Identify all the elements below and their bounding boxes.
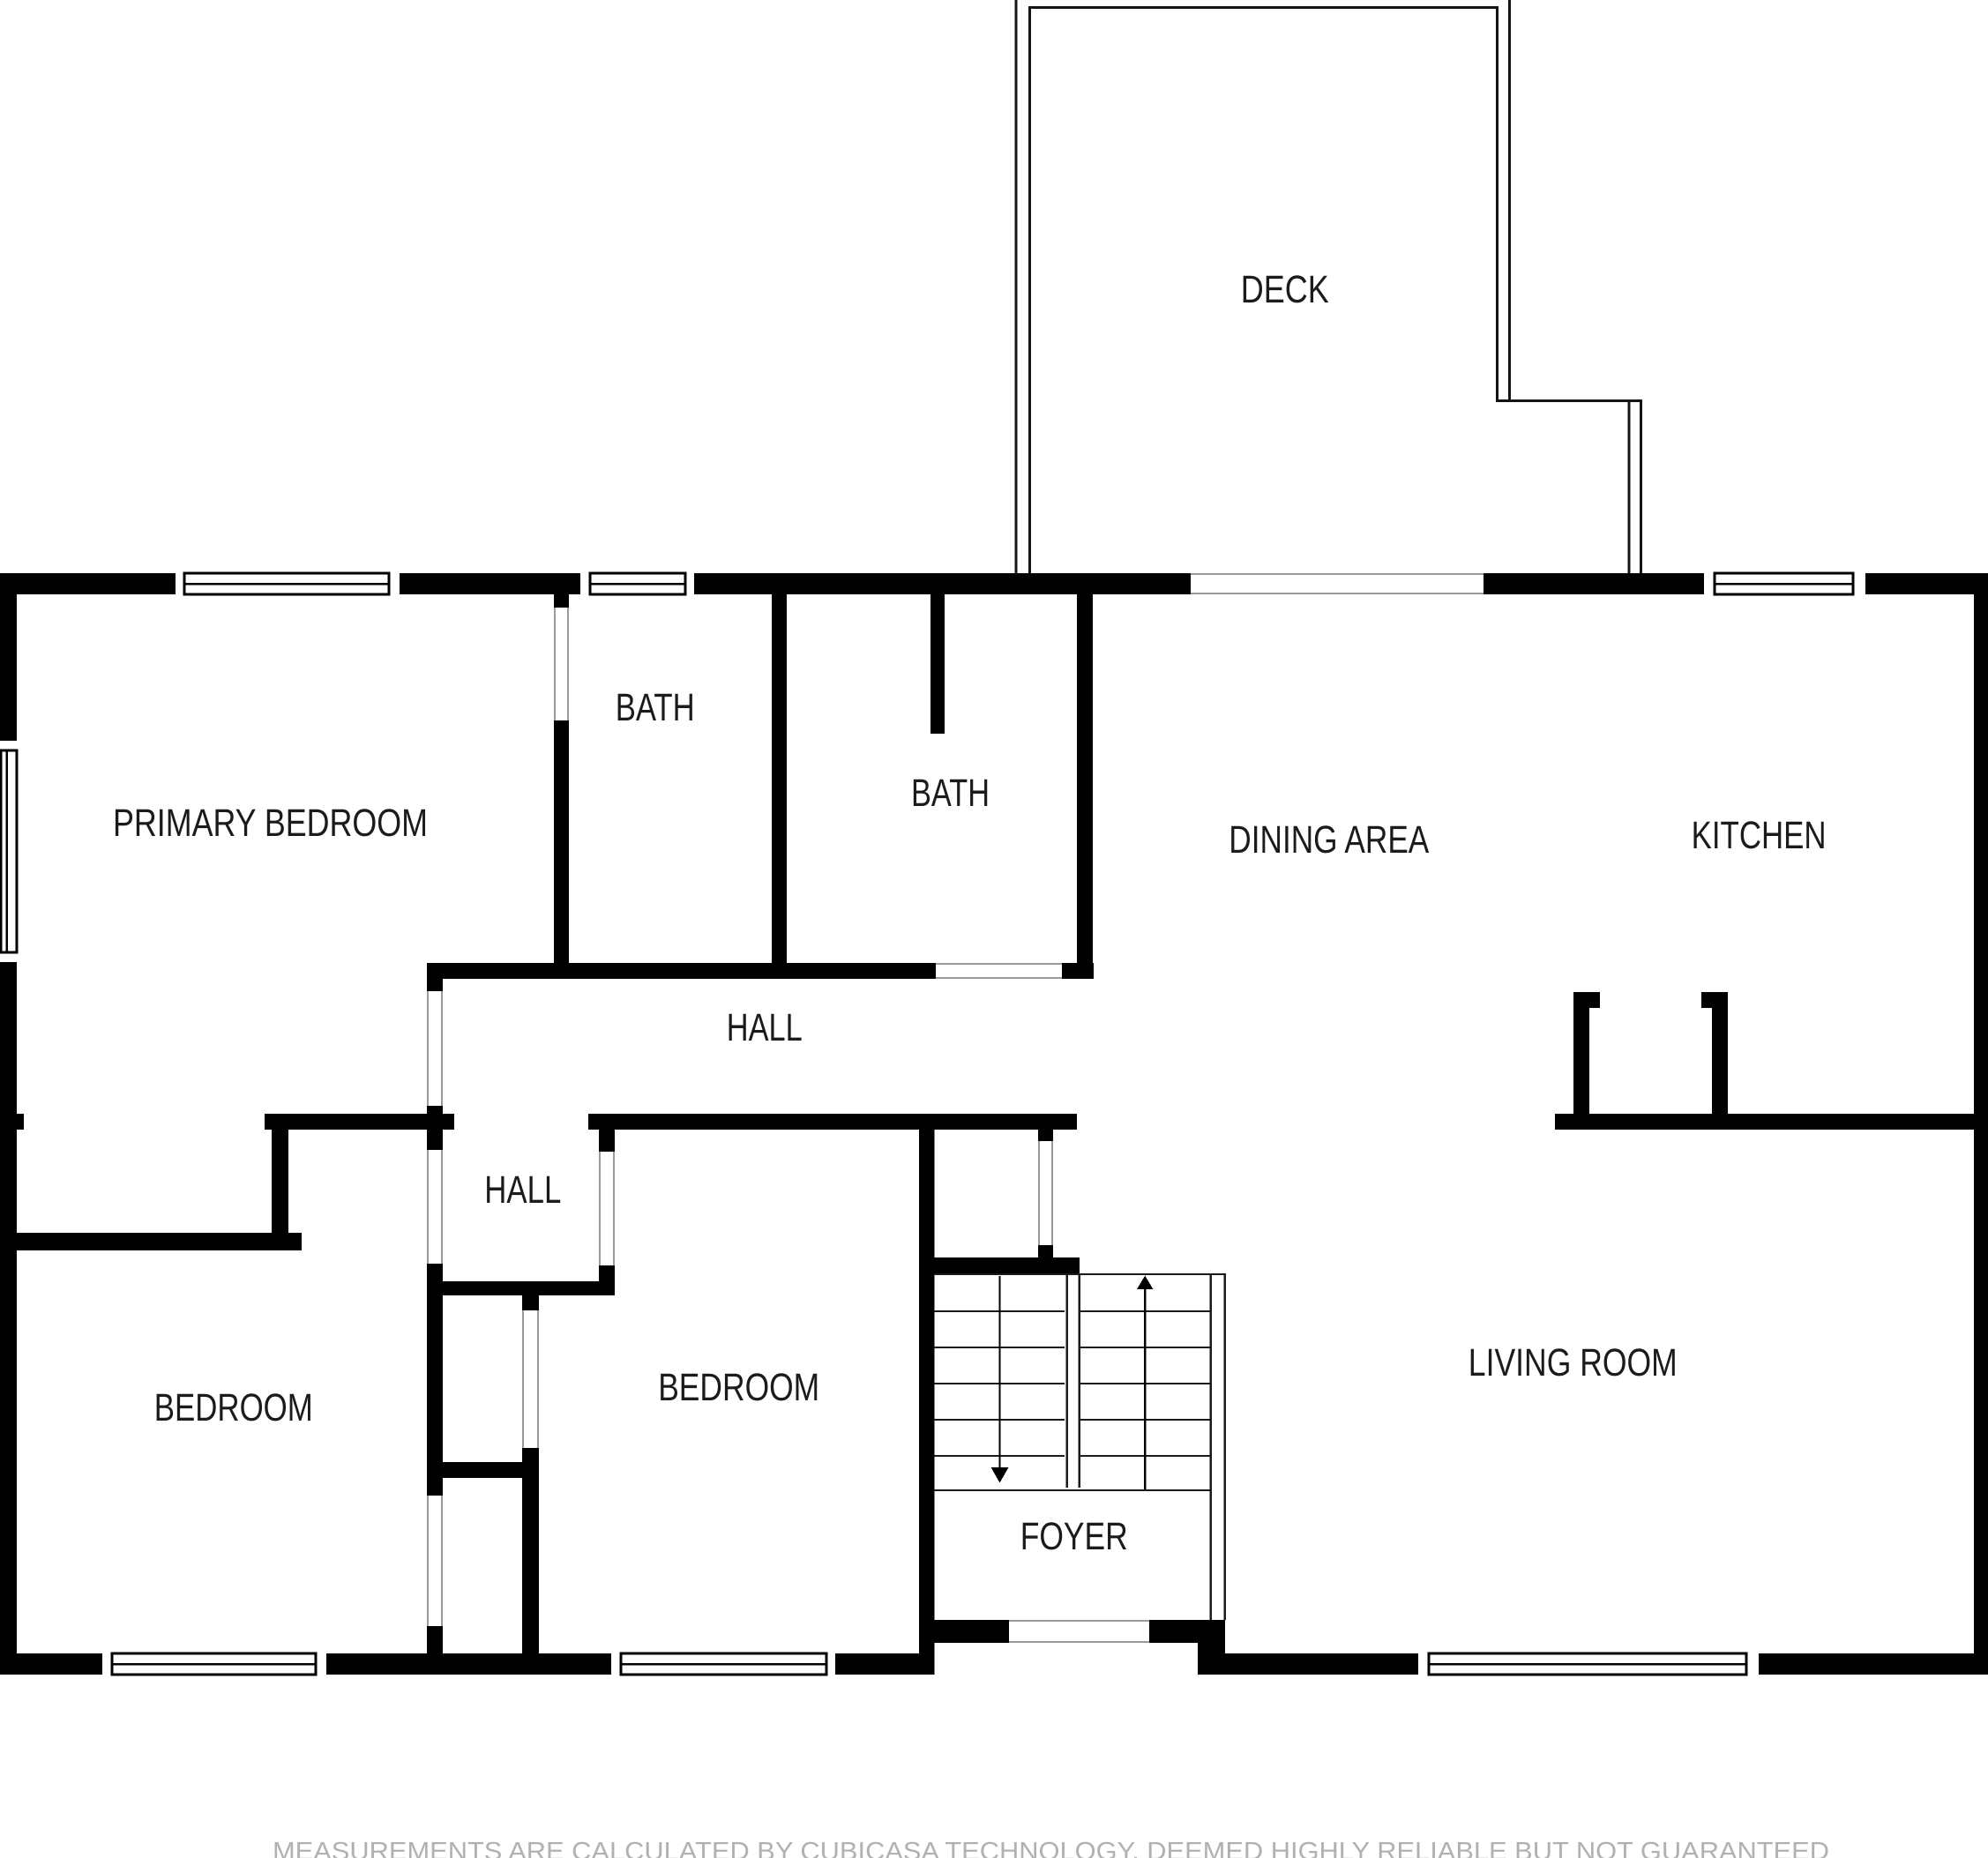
svg-text:MEASUREMENTS ARE CALCULATED BY: MEASUREMENTS ARE CALCULATED BY CUBICASA …: [273, 1838, 1829, 1858]
svg-text:BEDROOM: BEDROOM: [658, 1366, 819, 1409]
svg-text:FOYER: FOYER: [1020, 1515, 1128, 1558]
svg-text:BATH: BATH: [616, 686, 695, 729]
svg-text:HALL: HALL: [484, 1168, 561, 1212]
svg-text:BATH: BATH: [911, 772, 990, 815]
svg-text:HALL: HALL: [727, 1006, 803, 1049]
svg-text:PRIMARY BEDROOM: PRIMARY BEDROOM: [113, 802, 428, 845]
svg-text:DECK: DECK: [1241, 268, 1329, 311]
svg-text:LIVING ROOM: LIVING ROOM: [1469, 1341, 1678, 1384]
svg-text:BEDROOM: BEDROOM: [154, 1386, 313, 1429]
svg-text:KITCHEN: KITCHEN: [1692, 814, 1827, 857]
svg-text:DINING AREA: DINING AREA: [1229, 818, 1430, 862]
